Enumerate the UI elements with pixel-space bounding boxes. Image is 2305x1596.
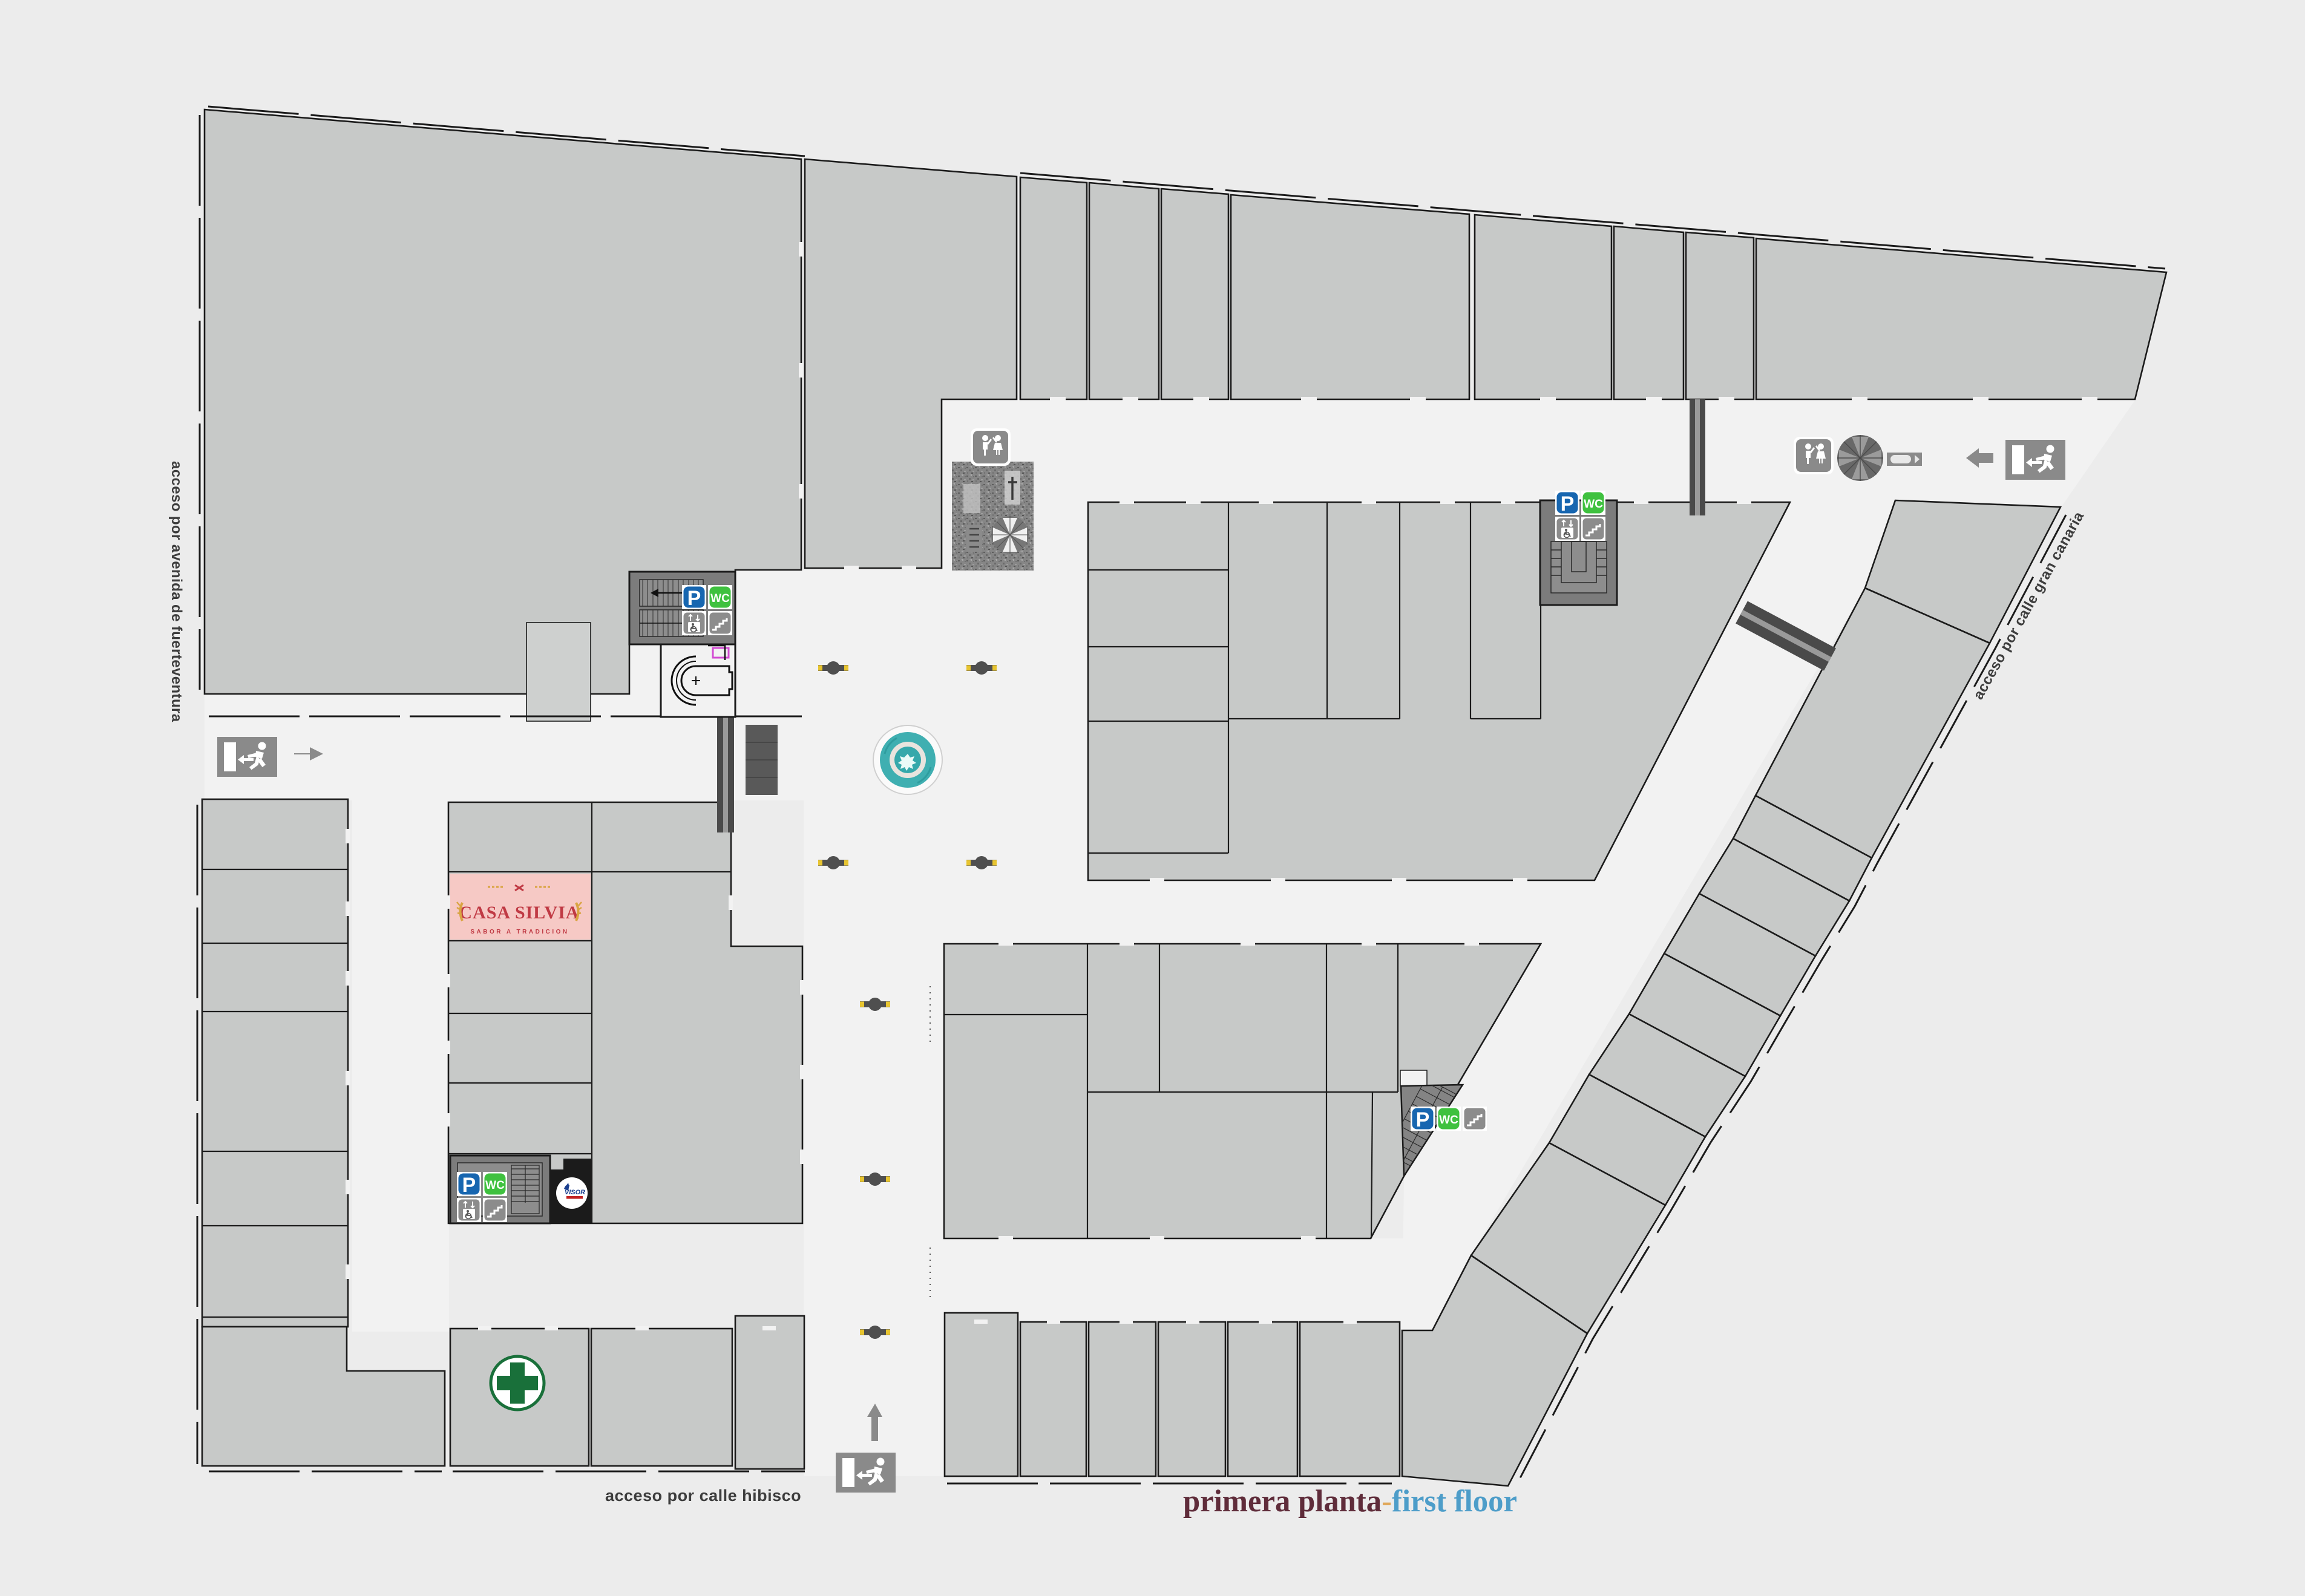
svg-text:acceso por calle hibisco: acceso por calle hibisco (605, 1486, 801, 1505)
svg-text:primera planta-first floor: primera planta-first floor (1183, 1484, 1517, 1519)
svg-text:SABOR A TRADICION: SABOR A TRADICION (470, 929, 569, 935)
svg-text:CASA SILVIA: CASA SILVIA (459, 903, 579, 923)
svg-text:acceso por avenida de fuerteve: acceso por avenida de fuerteventura (168, 461, 185, 722)
